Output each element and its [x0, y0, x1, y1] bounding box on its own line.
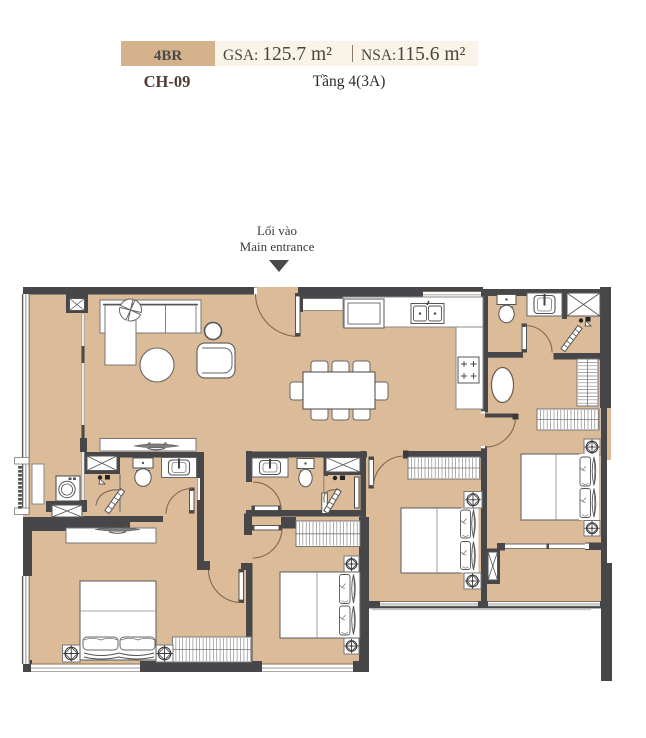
- svg-text:NSA:115.6 m²: NSA:115.6 m²: [361, 44, 466, 65]
- svg-text:4BR: 4BR: [154, 48, 183, 64]
- svg-text:CH-09: CH-09: [144, 72, 191, 91]
- svg-text:GSA: 125.7 m²: GSA: 125.7 m²: [223, 44, 332, 65]
- svg-text:Main entrance: Main entrance: [240, 239, 315, 254]
- svg-text:Tầng 4(3A): Tầng 4(3A): [313, 73, 386, 90]
- svg-text:Lối vào: Lối vào: [257, 223, 297, 238]
